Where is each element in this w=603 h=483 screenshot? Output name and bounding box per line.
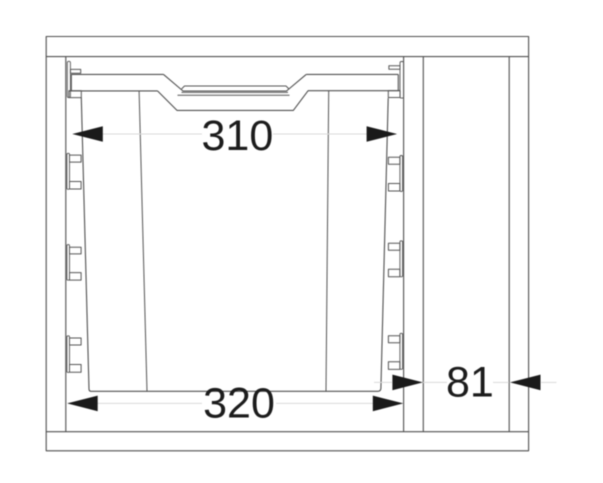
svg-text:310: 310 bbox=[202, 112, 274, 160]
svg-text:320: 320 bbox=[203, 379, 275, 427]
svg-text:81: 81 bbox=[446, 358, 494, 406]
